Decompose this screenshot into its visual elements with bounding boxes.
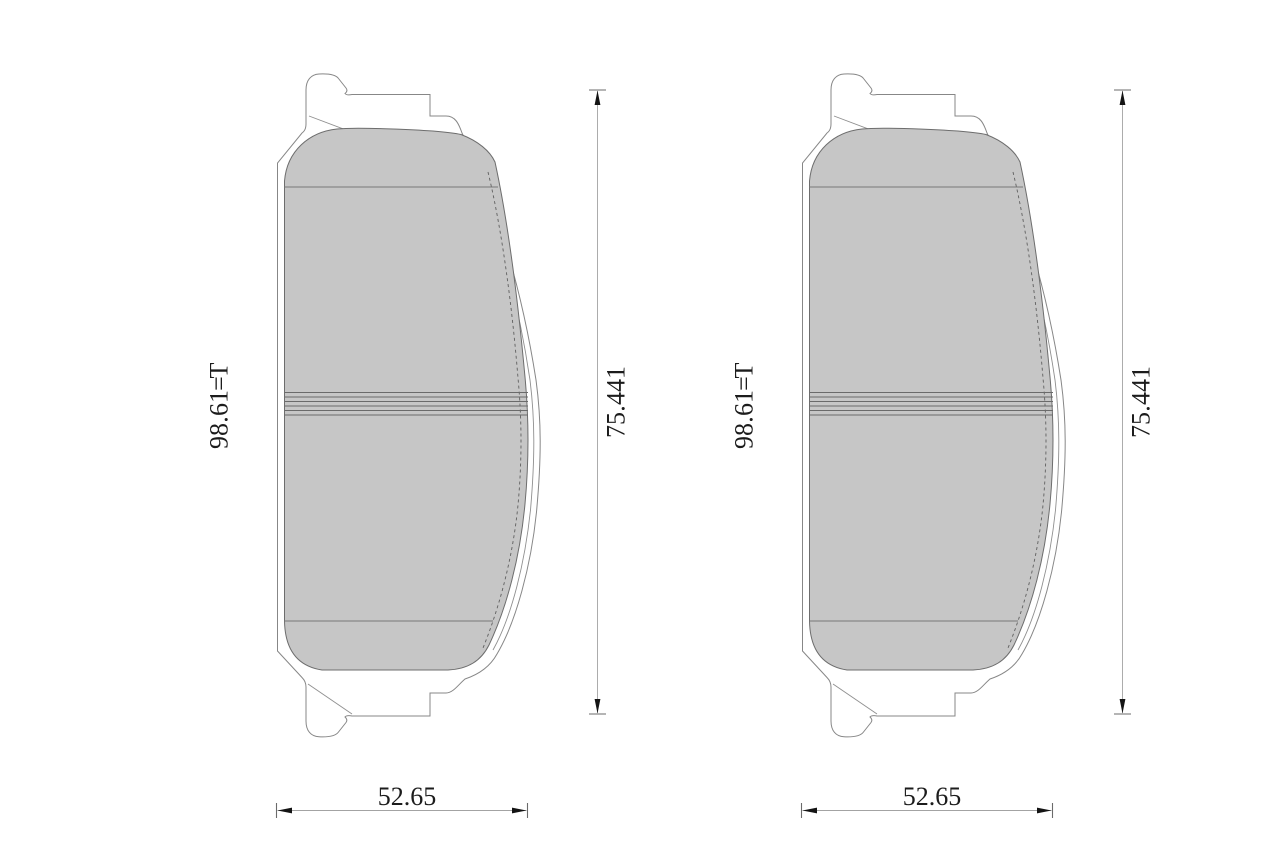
pad-view-left: [277, 74, 607, 818]
height-label-right: 144.57: [1125, 366, 1157, 438]
drawing-canvas: T=16.89 144.57 52.65 T=16.89 144.57 52.6…: [0, 0, 1280, 854]
width-label-left: 52.65: [347, 782, 467, 812]
height-label-left: 144.57: [600, 366, 632, 438]
brake-pad-technical-drawing: [0, 0, 1280, 854]
thickness-label-left: T=16.89: [203, 364, 235, 449]
width-label-right: 52.65: [872, 782, 992, 812]
thickness-label-right: T=16.89: [728, 364, 760, 449]
pad-view-right: [802, 74, 1132, 818]
